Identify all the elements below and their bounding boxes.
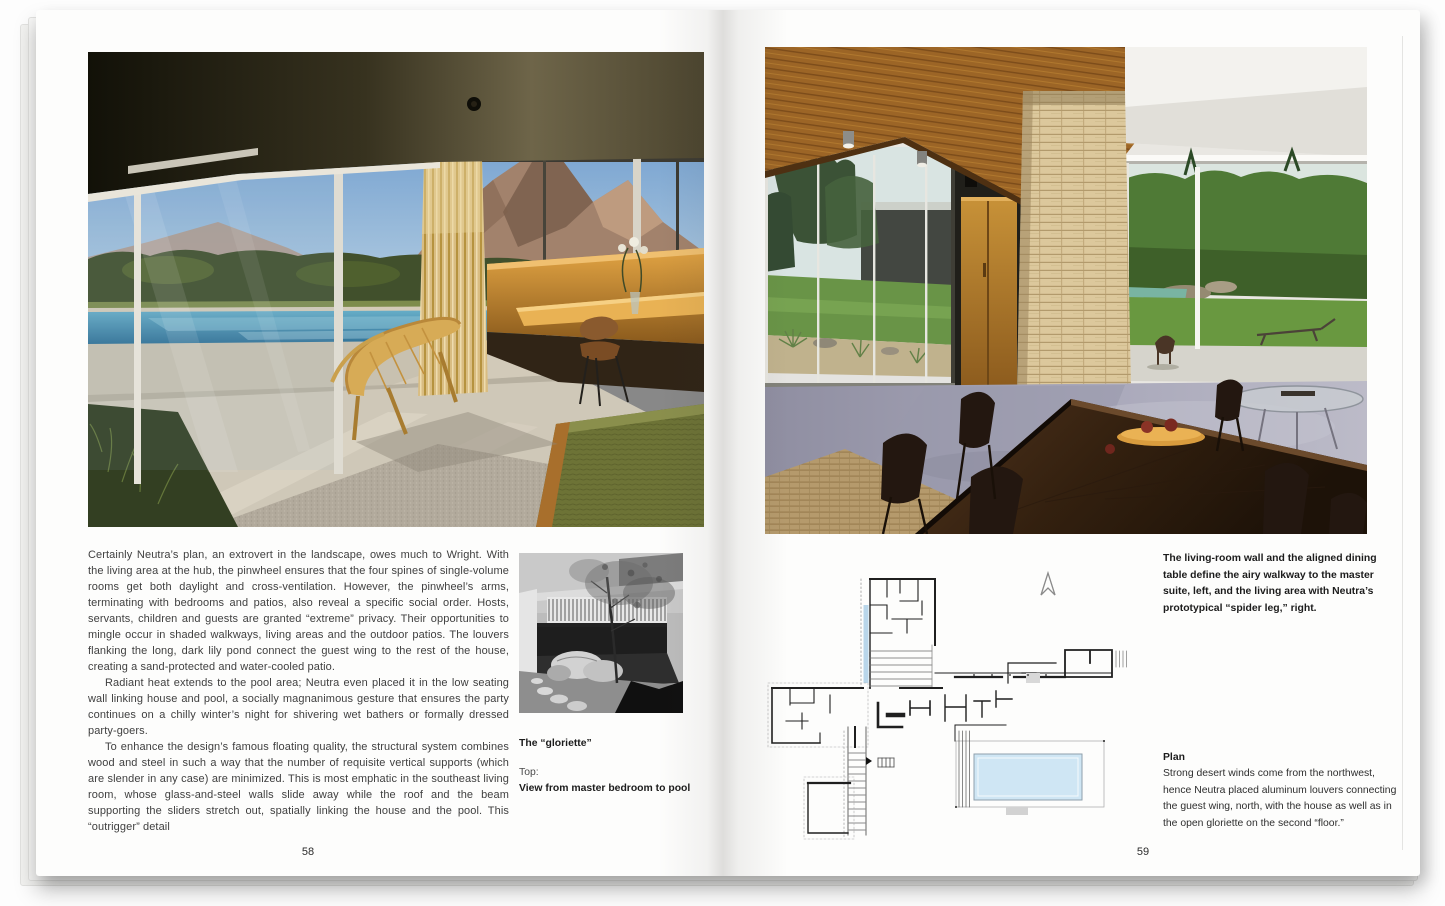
- north-arrow-icon: [1041, 573, 1055, 595]
- dining-room-photo: [765, 47, 1367, 534]
- floor-plan-drawing: [760, 555, 1150, 845]
- position-label: Top:: [519, 765, 719, 780]
- open-book: Certainly Neutra’s plan, an extrovert in…: [36, 10, 1420, 876]
- gloriette-caption: The “gloriette”: [519, 736, 719, 752]
- dining-photo-caption: The living-room wall and the aligned din…: [1163, 551, 1391, 617]
- page-edge-line: [1402, 36, 1403, 850]
- swimming-pool: [974, 754, 1082, 800]
- body-text-column: Certainly Neutra’s plan, an extrovert in…: [88, 547, 509, 835]
- plan-heading: Plan: [1163, 750, 1391, 766]
- floor-plan-illustration: [760, 555, 1150, 845]
- body-paragraph-2: Radiant heat extends to the pool area; N…: [88, 675, 509, 739]
- gloriette-illustration: [519, 553, 683, 713]
- body-paragraph-3: To enhance the design’s famous floating …: [88, 739, 509, 835]
- spider-leg-column: [1195, 167, 1200, 349]
- body-paragraph-1: Certainly Neutra’s plan, an extrovert in…: [88, 547, 509, 675]
- page-number-left: 58: [268, 846, 348, 858]
- position-caption: View from master bedroom to pool: [519, 781, 729, 797]
- gloriette-photo: [519, 553, 683, 713]
- lily-pond: [864, 605, 869, 683]
- stone-wall: [1017, 91, 1131, 387]
- master-bedroom-illustration: [88, 52, 704, 527]
- plan-caption: Strong desert winds come from the northw…: [1163, 766, 1397, 832]
- page-number-right: 59: [1103, 846, 1183, 858]
- dining-room-illustration: [765, 47, 1367, 534]
- master-bedroom-photo: [88, 52, 704, 527]
- book-spread-photo: Certainly Neutra’s plan, an extrovert in…: [0, 0, 1445, 906]
